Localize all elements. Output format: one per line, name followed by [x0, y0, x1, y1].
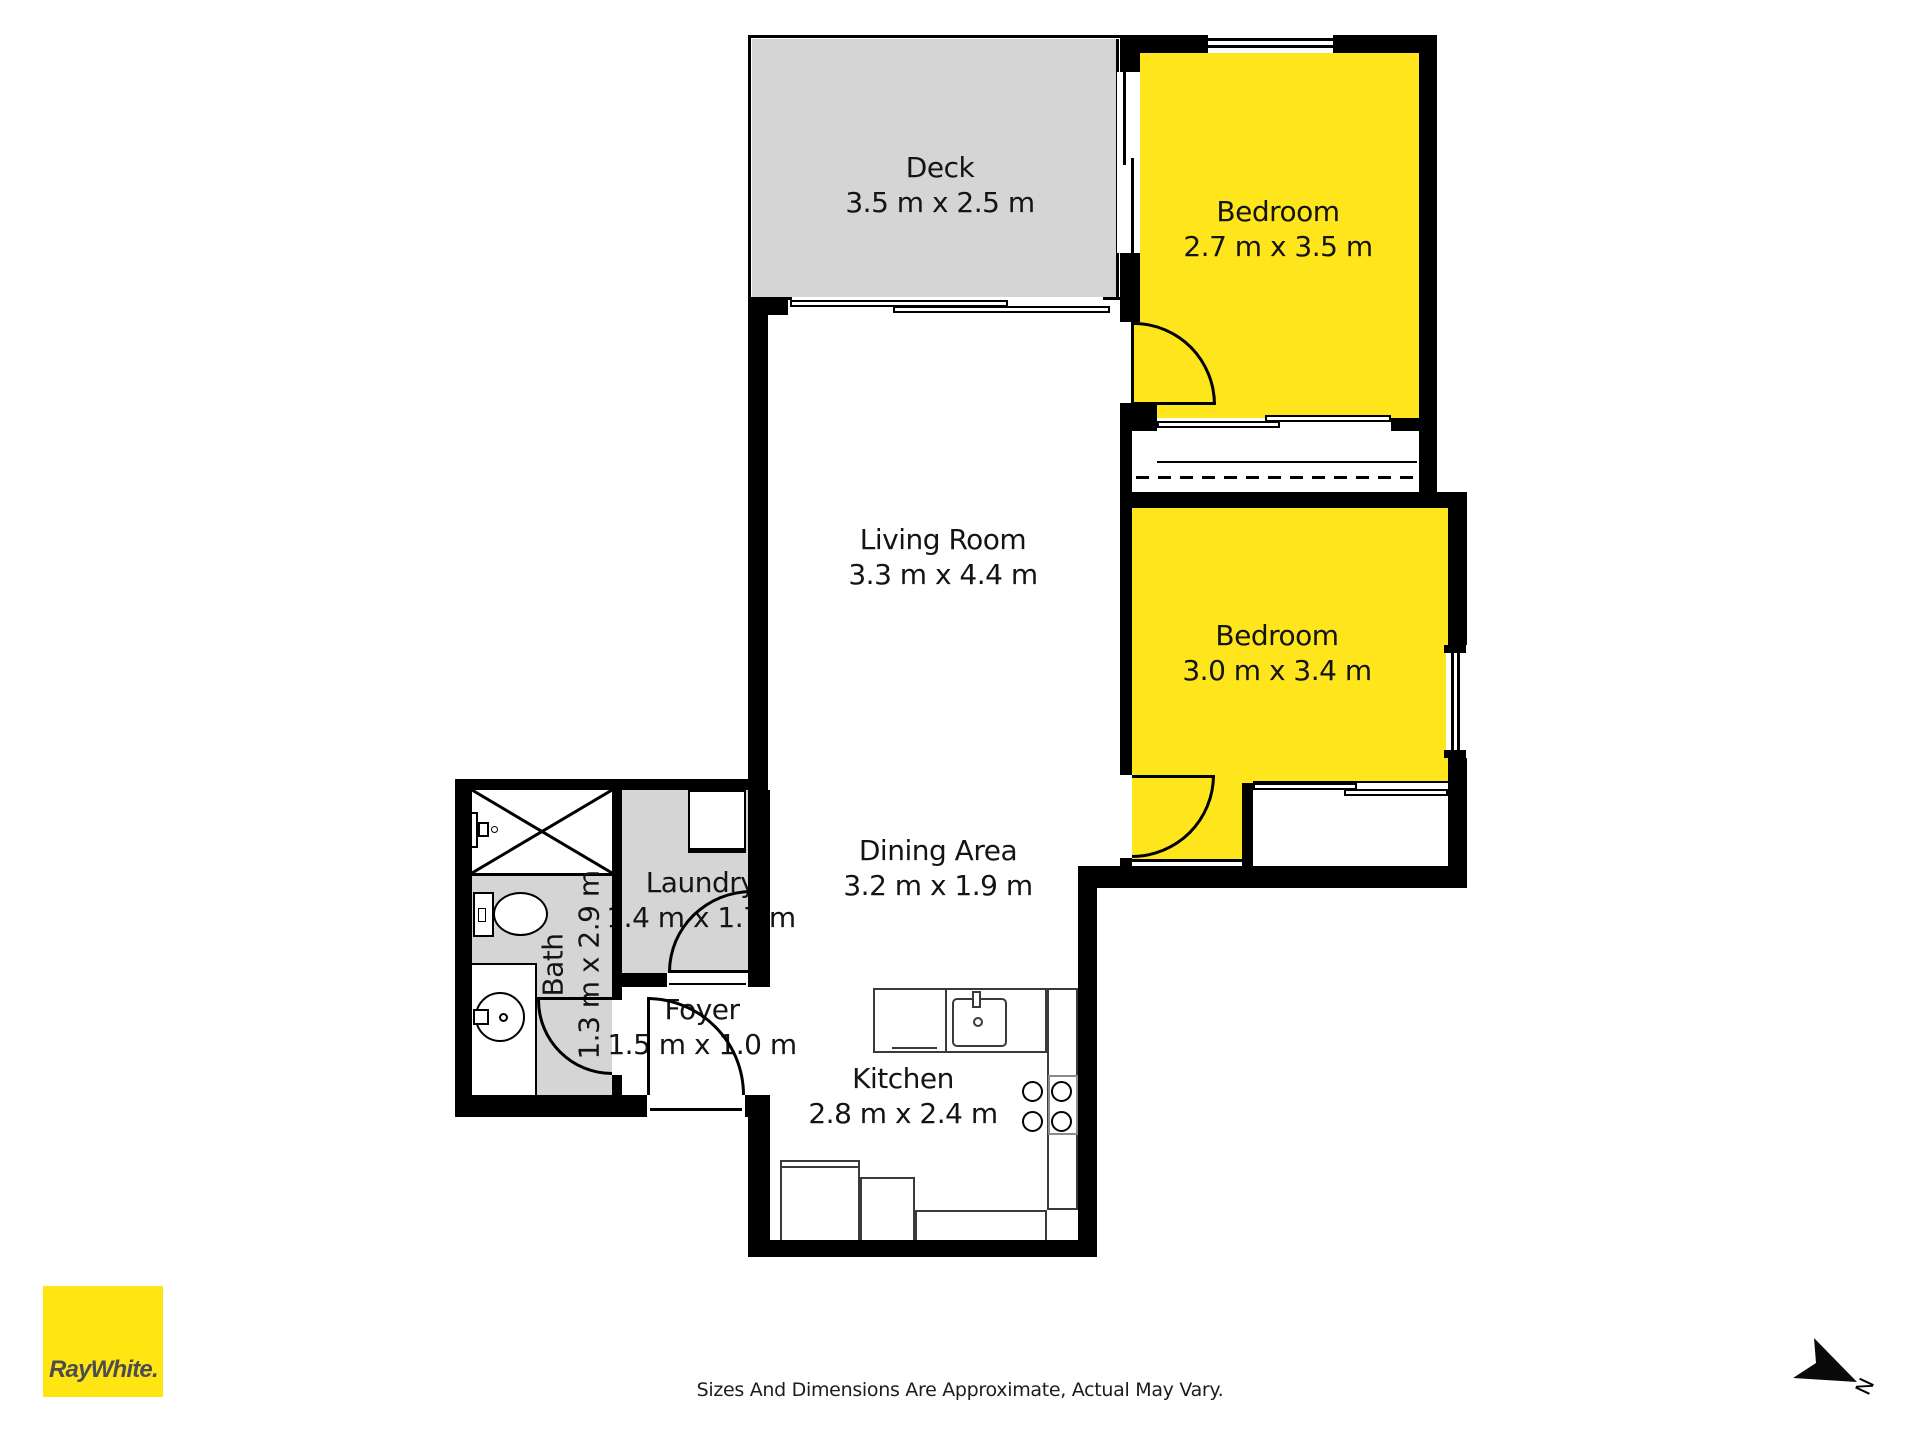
washing-machine: [688, 790, 746, 853]
bedroom2-window-pane-2: [1457, 653, 1460, 750]
room-label-bath-name: Bath: [537, 933, 570, 996]
room-dims: 2.7 m x 3.5 m: [1183, 229, 1372, 264]
wall-living-top-stub: [748, 298, 788, 315]
kitchen-cabinet: [860, 1177, 915, 1242]
refrigerator: [780, 1160, 860, 1242]
kitchen-sink-faucet: [972, 991, 981, 1008]
cooktop-burner-2: [1051, 1081, 1072, 1102]
bedroom1-west-window-pane-1: [1123, 72, 1126, 165]
deck-edge-bottom-east: [1103, 297, 1120, 300]
bedroom1-west-window-pane-2: [1131, 158, 1134, 253]
cooktop-burner-1: [1022, 1081, 1043, 1102]
kitchen-counter-divider: [945, 988, 947, 1053]
room-name: Dining Area: [843, 833, 1032, 868]
room-name: Living Room: [848, 522, 1037, 557]
wardrobe-sliding-door-panel-2: [1265, 415, 1391, 422]
deck-edge-top: [748, 35, 1120, 38]
bedroom2-window-cap-bottom: [1444, 750, 1466, 758]
disclaimer-text: Sizes And Dimensions Are Approximate, Ac…: [697, 1379, 1224, 1401]
wall-westblock-south-east: [745, 1095, 770, 1117]
wall-living-east: [1120, 403, 1132, 775]
wall-kitchen-south: [748, 1240, 1097, 1257]
wall-bedroom1-west-stub-bottom: [1120, 253, 1140, 322]
bedroom1-top-window-line-1: [1208, 38, 1333, 41]
wall-bath-laundry-lower: [612, 1075, 622, 1117]
floor-plan-page: Deck 3.5 m x 2.5 m Bedroom 2.7 m x 3.5 m…: [0, 0, 1920, 1440]
room-label-dining-area: Dining Area 3.2 m x 1.9 m: [843, 833, 1032, 903]
closet-sliding-door-panel-2: [1344, 789, 1448, 796]
ray-white-logo-text: RayWhite.: [49, 1356, 158, 1384]
deck-edge-left: [748, 35, 751, 301]
shower: [472, 790, 612, 876]
room-name: Deck: [845, 150, 1034, 185]
wall-bedroom1-right: [1419, 35, 1437, 492]
bedroom1-top-window-line-2: [1208, 45, 1333, 48]
wall-wardrobe-stub-right: [1391, 418, 1419, 431]
entry-door-opening: [647, 1095, 745, 1117]
room-name: Bedroom: [1183, 194, 1372, 229]
wall-bedroom1-west-stub-top: [1120, 35, 1140, 72]
room-dims: 3.2 m x 1.9 m: [843, 868, 1032, 903]
wall-kitchen-west: [748, 1095, 770, 1257]
wall-bath-laundry-upper: [612, 790, 622, 1000]
room-name: Kitchen: [808, 1061, 997, 1096]
kitchen-sink-drain: [973, 1017, 983, 1027]
room-dims: 3.0 m x 3.4 m: [1182, 653, 1371, 688]
ray-white-logo: RayWhite.: [43, 1286, 163, 1397]
wall-laundry-south: [622, 973, 667, 987]
deck-sliding-door-panel-2: [893, 306, 1110, 313]
laundry-threshold-line: [669, 983, 746, 985]
bedroom2-window-cap-top: [1444, 645, 1466, 653]
bath-sink-faucet: [473, 1009, 489, 1025]
toilet-button: [478, 908, 486, 922]
wall-living-west: [748, 298, 768, 790]
wardrobe-shelf-line: [1157, 461, 1417, 463]
room-dims: 2.8 m x 2.4 m: [808, 1096, 997, 1131]
wardrobe-sliding-door-panel-1: [1157, 421, 1280, 428]
wall-south-east: [1078, 866, 1467, 888]
toilet-bowl: [493, 892, 548, 936]
room-label-bedroom-1: Bedroom 2.7 m x 3.5 m: [1183, 194, 1372, 264]
wall-kitchen-east: [1078, 866, 1097, 1257]
bath-sink-drain: [499, 1013, 508, 1022]
kitchen-appliance-front-line: [892, 1047, 937, 1049]
wall-bedroom2-right-upper: [1448, 508, 1467, 645]
bedroom2-window-pane-1: [1451, 653, 1454, 750]
bedroom2-door-opening: [1120, 775, 1132, 858]
refrigerator-front-line: [780, 1166, 860, 1168]
entry-threshold-line: [650, 1108, 742, 1111]
closet-floor: [1253, 796, 1448, 866]
bedroom1-west-window-gap: [1117, 72, 1140, 253]
kitchen-counter-south: [915, 1210, 1047, 1242]
closet-sliding-door-panel-1: [1253, 783, 1357, 790]
wardrobe-rail-dashed-line: [1136, 476, 1417, 479]
shower-fixture-knob: [478, 822, 489, 837]
room-dims: 3.5 m x 2.5 m: [845, 185, 1034, 220]
cooktop-burner-4: [1051, 1111, 1072, 1132]
bedroom2-nook-line: [1132, 859, 1242, 862]
wall-bedroom2-top: [1132, 492, 1467, 508]
room-label-deck: Deck 3.5 m x 2.5 m: [845, 150, 1034, 220]
room-label-kitchen: Kitchen 2.8 m x 2.4 m: [808, 1061, 997, 1131]
wall-laundry-east: [748, 790, 770, 987]
cooktop-burner-3: [1022, 1111, 1043, 1132]
shower-fixture-head: [491, 826, 498, 833]
wall-westblock-left: [455, 779, 472, 1117]
room-name: Bedroom: [1182, 618, 1371, 653]
wall-wardrobe-stub-left: [1132, 418, 1157, 431]
wall-westblock-top: [455, 779, 768, 790]
washing-machine-front-line: [690, 848, 744, 851]
room-dims: 3.3 m x 4.4 m: [848, 557, 1037, 592]
room-label-living-room: Living Room 3.3 m x 4.4 m: [848, 522, 1037, 592]
room-label-bedroom-2: Bedroom 3.0 m x 3.4 m: [1182, 618, 1371, 688]
